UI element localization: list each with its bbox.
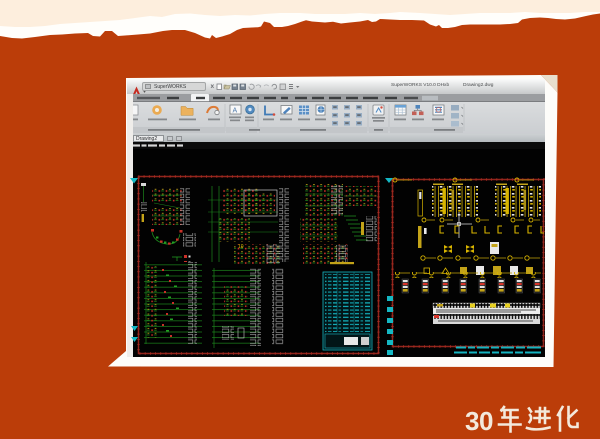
svg-text:A: A bbox=[233, 108, 238, 115]
svg-text:10: 10 bbox=[238, 244, 244, 250]
svg-text:30: 30 bbox=[465, 406, 493, 436]
